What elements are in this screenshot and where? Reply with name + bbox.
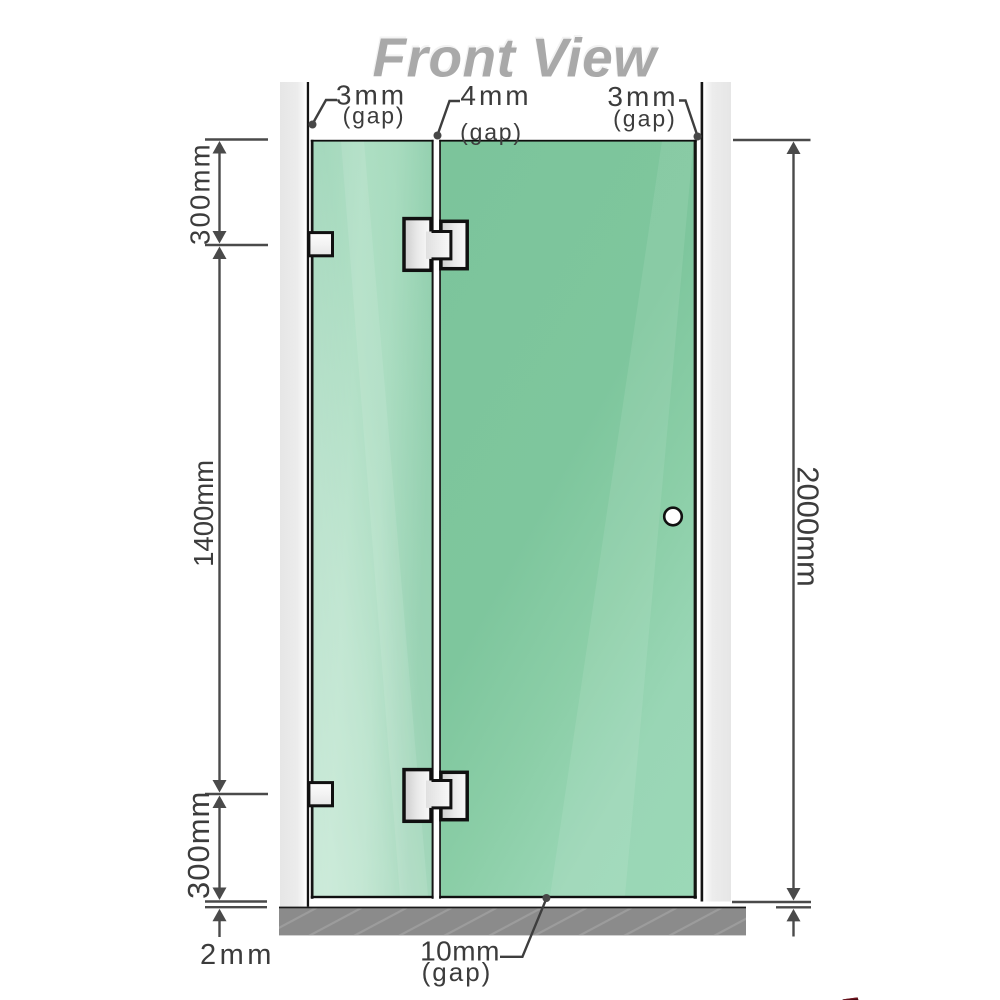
svg-text:(gap): (gap) [343, 103, 406, 129]
svg-text:1400mm: 1400mm [188, 460, 219, 567]
svg-text:(gap): (gap) [460, 119, 523, 145]
svg-text:4mm: 4mm [460, 80, 531, 111]
svg-text:300mm: 300mm [181, 791, 216, 899]
svg-text:(gap): (gap) [422, 957, 493, 987]
svg-text:2mm: 2mm [200, 939, 275, 971]
svg-text:2000mm: 2000mm [791, 466, 826, 587]
svg-text:(gap): (gap) [613, 106, 677, 132]
svg-text:300mm: 300mm [185, 142, 216, 245]
